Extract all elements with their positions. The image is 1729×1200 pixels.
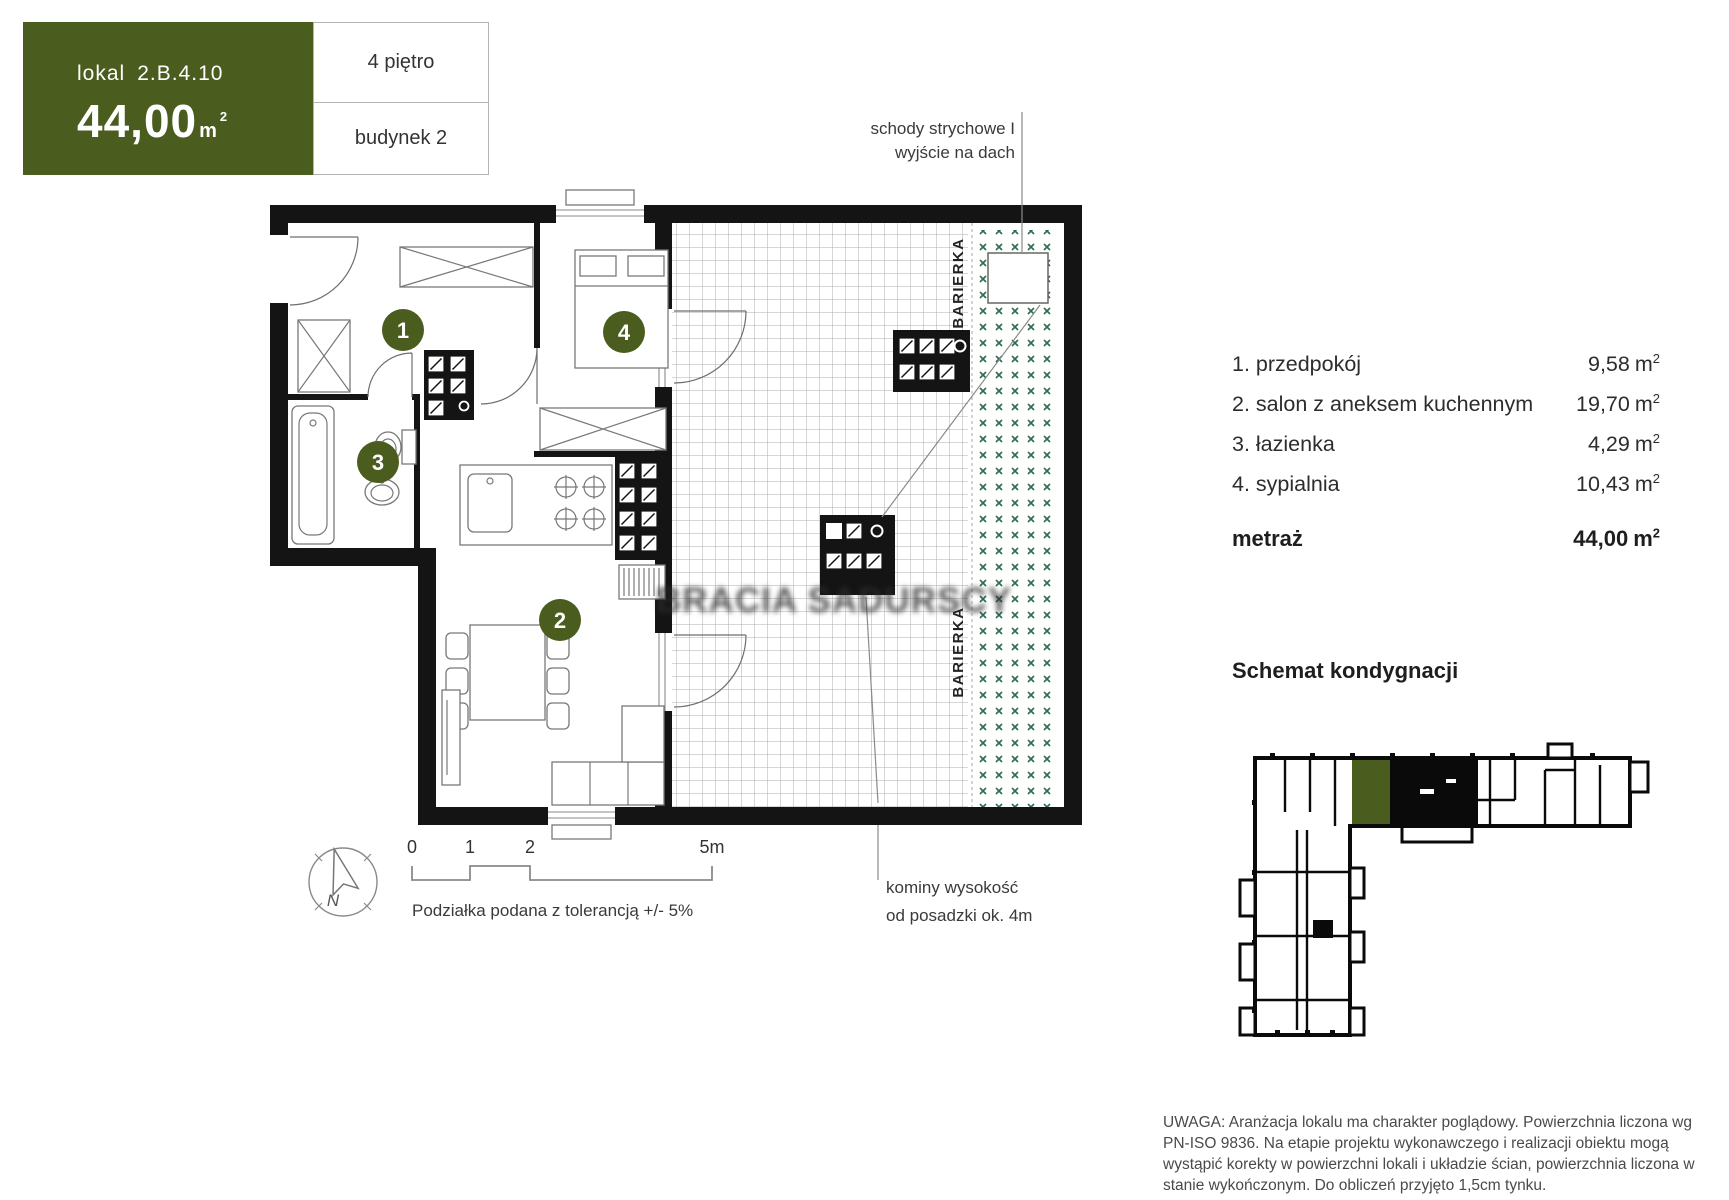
hall-cabinet — [424, 350, 474, 420]
unit-area-value: 44,00 — [77, 95, 197, 147]
room-list: 1. przedpokój 9,58m2 2. salon z aneksem … — [1232, 352, 1660, 512]
bathroom-door — [368, 353, 412, 397]
unit-area-sup: 2 — [220, 109, 228, 124]
floor-label: 4 piętro — [368, 51, 435, 74]
room-row-3: 3. łazienka 4,29m2 — [1232, 432, 1660, 457]
chimney-block-top — [893, 330, 970, 392]
total-area: 44,00m2 — [1573, 526, 1660, 552]
total-label: metraż — [1232, 526, 1303, 552]
lokal-number: 2.B.4.10 — [137, 62, 223, 85]
schematic-title: Schemat kondygnacji — [1232, 658, 1458, 684]
svg-text:1: 1 — [397, 318, 409, 343]
washbasin — [365, 479, 399, 505]
lokal-label: lokal — [77, 62, 125, 85]
scale-tick-1: 1 — [465, 837, 475, 857]
building-schematic — [1130, 735, 1690, 1050]
scale-tick-0: 0 — [407, 837, 417, 857]
bedroom-door — [481, 348, 537, 404]
scale-note: Podziałka podana z tolerancją +/- 5% — [412, 901, 693, 920]
floor-plan: BARIERKA BARIERKA schody strychowe I wyj… — [240, 95, 1100, 945]
tv-cabinet — [442, 690, 460, 785]
scale-tick-2: 2 — [525, 837, 535, 857]
attic-label-line2: wyjście na dach — [894, 143, 1015, 162]
unit-id-line: lokal2.B.4.10 — [77, 62, 313, 86]
compass-north-label: N — [327, 891, 340, 910]
disclaimer-text: UWAGA: Aranżacja lokalu ma charakter pog… — [1163, 1112, 1703, 1196]
entrance-door — [290, 237, 358, 305]
room-badge-3: 3 — [357, 441, 399, 483]
floorplan-page: lokal2.B.4.10 44,00m2 4 piętro budynek 2 — [0, 0, 1729, 1200]
schematic-core — [1313, 920, 1333, 938]
compass: N — [309, 846, 377, 916]
total-area-row: metraż 44,00m2 — [1232, 526, 1660, 552]
room-row-1: 1. przedpokój 9,58m2 — [1232, 352, 1660, 377]
bathtub — [292, 406, 334, 544]
attic-label-line1: schody strychowe I — [870, 119, 1015, 138]
room-row-4: 4. sypialnia 10,43m2 — [1232, 472, 1660, 497]
room-name: 3. łazienka — [1232, 432, 1335, 457]
room-badge-1: 1 — [382, 309, 424, 351]
room-badge-4: 4 — [603, 311, 645, 353]
room-area: 4,29m2 — [1588, 432, 1660, 457]
room-name: 1. przedpokój — [1232, 352, 1361, 377]
roof-window — [566, 190, 634, 205]
svg-text:3: 3 — [372, 450, 384, 475]
room-row-2: 2. salon z aneksem kuchennym 19,70m2 — [1232, 392, 1660, 417]
unit-area-unit: m — [199, 120, 218, 142]
room-area: 9,58m2 — [1588, 352, 1660, 377]
room-badge-2: 2 — [539, 599, 581, 641]
scale-tick-5m: 5m — [699, 837, 724, 857]
kitchen-shaft — [615, 457, 668, 560]
chimney-label-line1: kominy wysokość — [886, 878, 1019, 897]
kitchen-counter — [460, 465, 612, 545]
compass-arrow — [322, 846, 359, 895]
scale-bar: 0 1 2 5m Podziałka podana z tolerancją +… — [407, 837, 725, 920]
room-name: 4. sypialnia — [1232, 472, 1340, 497]
svg-text:2: 2 — [554, 608, 566, 633]
scale-bar-line — [412, 866, 712, 880]
schematic-side-wing-walls — [1255, 830, 1350, 1030]
floor-box: 4 piętro — [313, 22, 489, 103]
terrace-gravel-strip — [978, 230, 1058, 807]
attic-stairs-box — [988, 253, 1048, 303]
room-name: 2. salon z aneksem kuchennym — [1232, 392, 1533, 417]
barrier-label-bottom: BARIERKA — [950, 606, 967, 697]
schematic-top-bump — [1548, 744, 1572, 758]
room-area: 10,43m2 — [1576, 472, 1660, 497]
svg-text:4: 4 — [618, 320, 631, 345]
agency-watermark: BRACIA SADURSCY — [656, 581, 1056, 619]
chimney-label-line2: od posadzki ok. 4m — [886, 906, 1032, 925]
dining-table — [446, 625, 569, 729]
schematic-balconies — [1240, 868, 1364, 1035]
window-sill — [552, 825, 611, 839]
barrier-label-top: BARIERKA — [950, 237, 967, 328]
schematic-highlighted-unit — [1352, 760, 1390, 824]
room-area: 19,70m2 — [1576, 392, 1660, 417]
schematic-right-tab — [1630, 762, 1648, 792]
